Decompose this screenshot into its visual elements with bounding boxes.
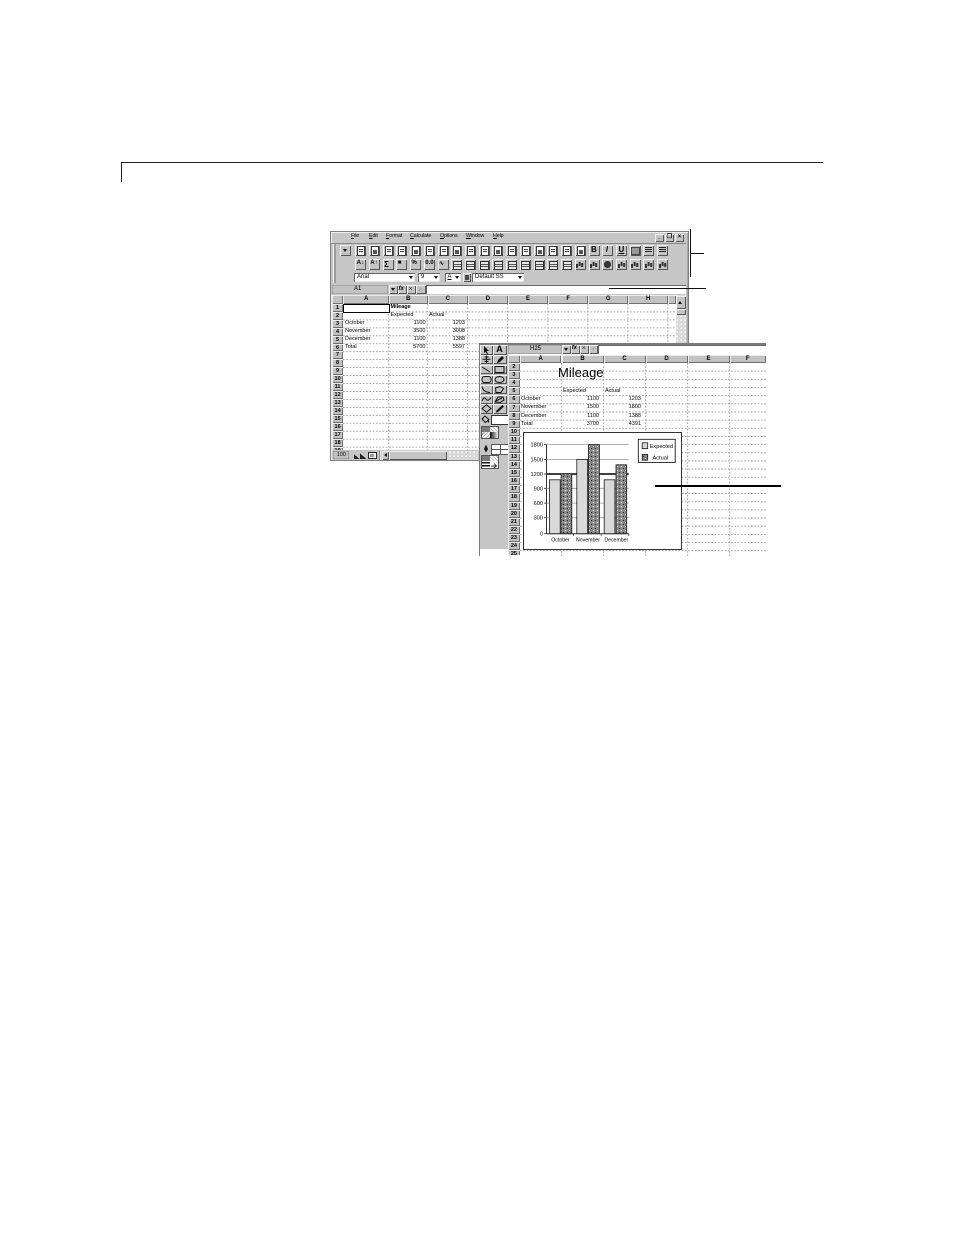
svg-text:December: December xyxy=(605,538,629,544)
svg-text:900: 900 xyxy=(534,486,543,492)
svg-text:1200: 1200 xyxy=(531,472,543,478)
svg-text:1500: 1500 xyxy=(531,457,543,463)
svg-text:600: 600 xyxy=(534,501,543,507)
svg-text:300: 300 xyxy=(534,516,543,522)
svg-text:October: October xyxy=(552,538,571,544)
svg-text:1800: 1800 xyxy=(531,443,543,449)
svg-text:0: 0 xyxy=(540,532,543,538)
svg-text:November: November xyxy=(576,538,600,544)
svg-text:Actual: Actual xyxy=(653,455,669,461)
svg-text:Expected: Expected xyxy=(650,444,673,450)
